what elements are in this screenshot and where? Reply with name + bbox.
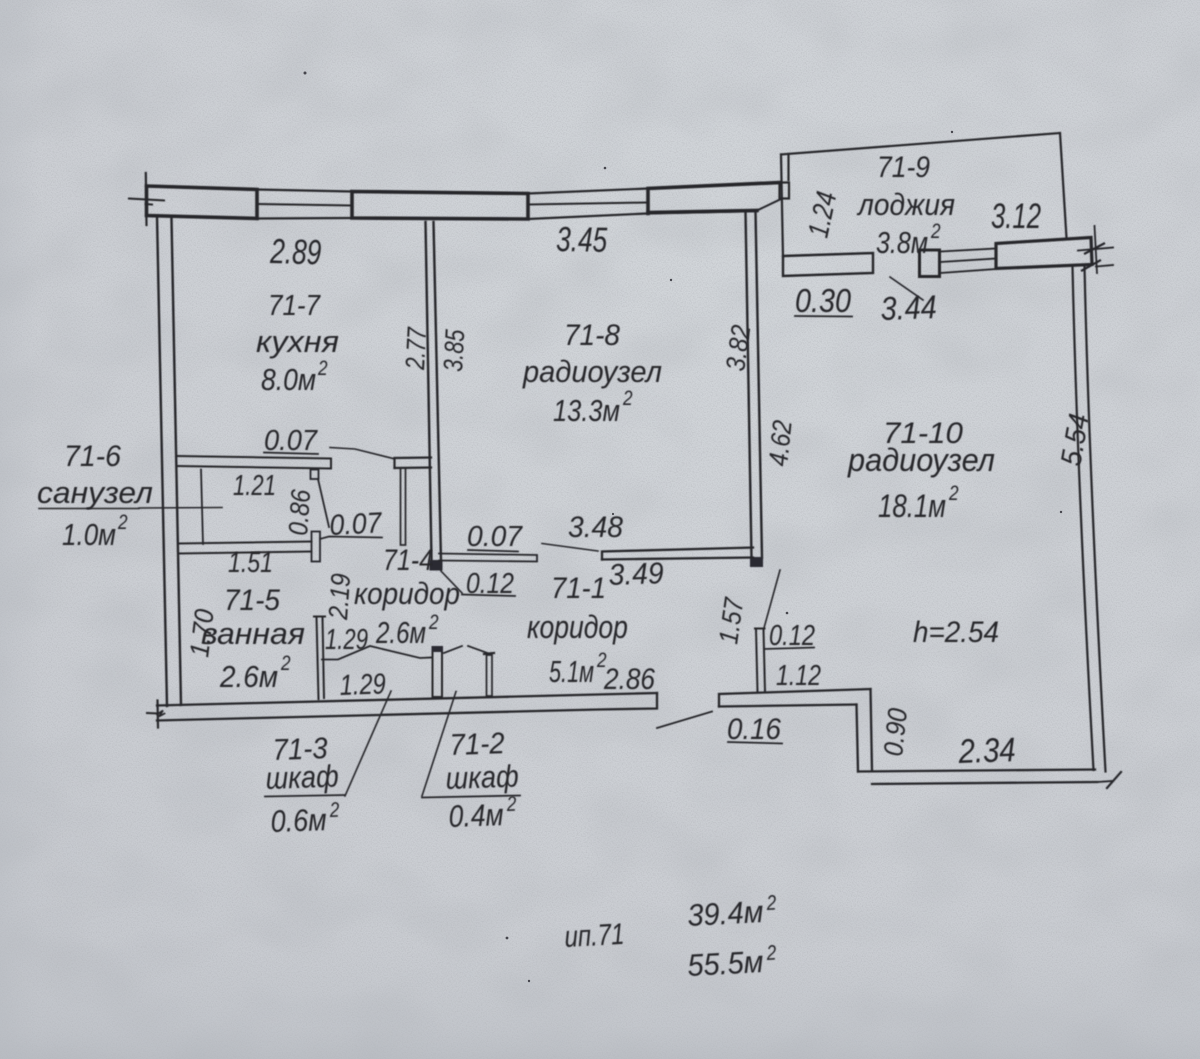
svg-text:2.77: 2.77 [401, 326, 433, 372]
svg-text:1.21: 1.21 [233, 470, 276, 501]
svg-text:0.16: 0.16 [727, 713, 782, 746]
svg-text:18.1м: 18.1м [878, 489, 946, 524]
svg-text:0.30: 0.30 [795, 282, 851, 319]
svg-text:2.34: 2.34 [957, 730, 1016, 771]
svg-text:39.4м: 39.4м [687, 895, 765, 933]
svg-text:3.12: 3.12 [991, 196, 1041, 236]
svg-text:1.29: 1.29 [325, 624, 368, 655]
svg-text:71-2: 71-2 [449, 727, 505, 762]
svg-text:2: 2 [328, 799, 340, 822]
svg-text:ип.71: ип.71 [564, 916, 626, 953]
svg-text:h=2.54: h=2.54 [913, 616, 999, 649]
svg-text:1.0м: 1.0м [62, 518, 116, 553]
svg-text:0.90: 0.90 [879, 706, 913, 757]
svg-text:71-4: 71-4 [383, 543, 433, 577]
svg-text:2: 2 [117, 512, 128, 535]
svg-text:3.45: 3.45 [556, 219, 608, 260]
svg-text:71-7: 71-7 [268, 289, 322, 322]
svg-text:0.86: 0.86 [284, 488, 317, 537]
svg-text:71-1: 71-1 [551, 572, 606, 605]
svg-text:0.07: 0.07 [329, 506, 384, 541]
svg-text:71-9: 71-9 [877, 149, 930, 183]
svg-text:3.48: 3.48 [568, 511, 624, 544]
svg-text:71-6: 71-6 [64, 440, 122, 473]
svg-text:0.07: 0.07 [264, 424, 318, 456]
svg-text:радиоузел: радиоузел [847, 442, 995, 478]
svg-text:2: 2 [765, 892, 777, 915]
svg-text:2: 2 [765, 942, 777, 965]
svg-text:3.82: 3.82 [721, 323, 757, 373]
svg-text:2: 2 [280, 653, 291, 676]
svg-text:3.49: 3.49 [608, 557, 664, 592]
svg-text:0.12: 0.12 [769, 619, 815, 652]
svg-text:1.12: 1.12 [776, 658, 821, 691]
svg-text:коридор: коридор [354, 577, 460, 612]
svg-text:3.44: 3.44 [880, 288, 937, 327]
svg-text:2.6м: 2.6м [375, 615, 426, 650]
svg-text:2: 2 [505, 793, 517, 816]
svg-text:0.07: 0.07 [467, 521, 523, 553]
svg-text:2.19: 2.19 [324, 573, 357, 622]
svg-text:71-5: 71-5 [224, 584, 281, 617]
svg-text:4.62: 4.62 [764, 419, 798, 468]
svg-text:55.5м: 55.5м [687, 945, 765, 983]
svg-text:5.1м: 5.1м [549, 654, 594, 689]
svg-text:2: 2 [930, 221, 941, 244]
svg-text:2: 2 [596, 650, 607, 673]
svg-text:2: 2 [428, 612, 439, 635]
svg-text:коридор: коридор [527, 610, 628, 646]
svg-text:0.6м: 0.6м [270, 803, 327, 839]
svg-text:0.12: 0.12 [466, 567, 514, 599]
svg-text:шкаф: шкаф [265, 760, 339, 797]
svg-text:санузел: санузел [37, 475, 153, 510]
svg-text:1.29: 1.29 [339, 667, 386, 701]
svg-text:3.85: 3.85 [439, 328, 471, 372]
svg-text:радиоузел: радиоузел [522, 355, 662, 389]
svg-text:13.3м: 13.3м [553, 394, 620, 429]
svg-text:71-8: 71-8 [564, 319, 620, 352]
svg-text:2.86: 2.86 [603, 662, 655, 695]
svg-text:2: 2 [622, 388, 633, 411]
svg-text:шкаф: шкаф [445, 760, 519, 797]
svg-text:3.8м: 3.8м [876, 224, 928, 259]
svg-text:2.89: 2.89 [269, 231, 322, 272]
svg-text:8.0м: 8.0м [261, 363, 316, 397]
svg-text:2: 2 [317, 358, 328, 381]
svg-text:1.51: 1.51 [228, 545, 273, 578]
svg-text:1.70: 1.70 [185, 607, 220, 659]
svg-text:2.6м: 2.6м [219, 660, 278, 695]
svg-text:0.4м: 0.4м [448, 798, 504, 834]
svg-text:2: 2 [948, 483, 959, 506]
svg-text:кухня: кухня [256, 324, 339, 359]
svg-text:лоджия: лоджия [856, 188, 955, 223]
